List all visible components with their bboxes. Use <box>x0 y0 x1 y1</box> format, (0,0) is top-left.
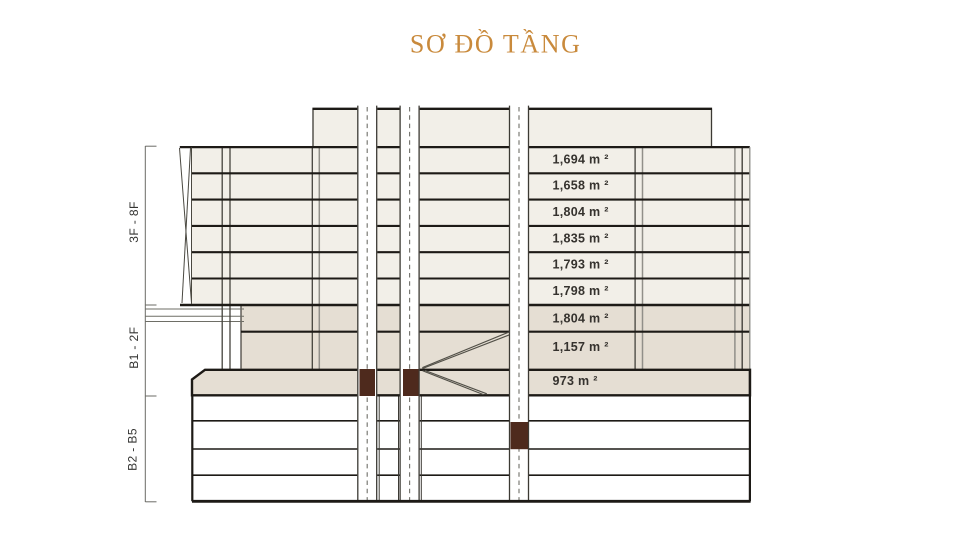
svg-text:1,835 m ²: 1,835 m ² <box>553 231 609 245</box>
svg-text:1,804 m ²: 1,804 m ² <box>553 312 609 326</box>
svg-text:B2 - B5: B2 - B5 <box>126 428 140 471</box>
svg-text:1,793 m ²: 1,793 m ² <box>553 258 609 272</box>
svg-text:1,798 m ²: 1,798 m ² <box>553 284 609 298</box>
svg-text:1,804 m ²: 1,804 m ² <box>553 205 609 219</box>
svg-text:1,694 m ²: 1,694 m ² <box>553 152 609 166</box>
svg-text:973 m ²: 973 m ² <box>553 374 598 388</box>
svg-text:1,157 m ²: 1,157 m ² <box>553 340 609 354</box>
svg-text:3F - 8F: 3F - 8F <box>127 201 141 242</box>
svg-text:1,658 m ²: 1,658 m ² <box>553 179 609 193</box>
svg-text:B1 - 2F: B1 - 2F <box>127 327 141 369</box>
svg-text:SƠ ĐỒ TẦNG: SƠ ĐỒ TẦNG <box>410 30 582 59</box>
